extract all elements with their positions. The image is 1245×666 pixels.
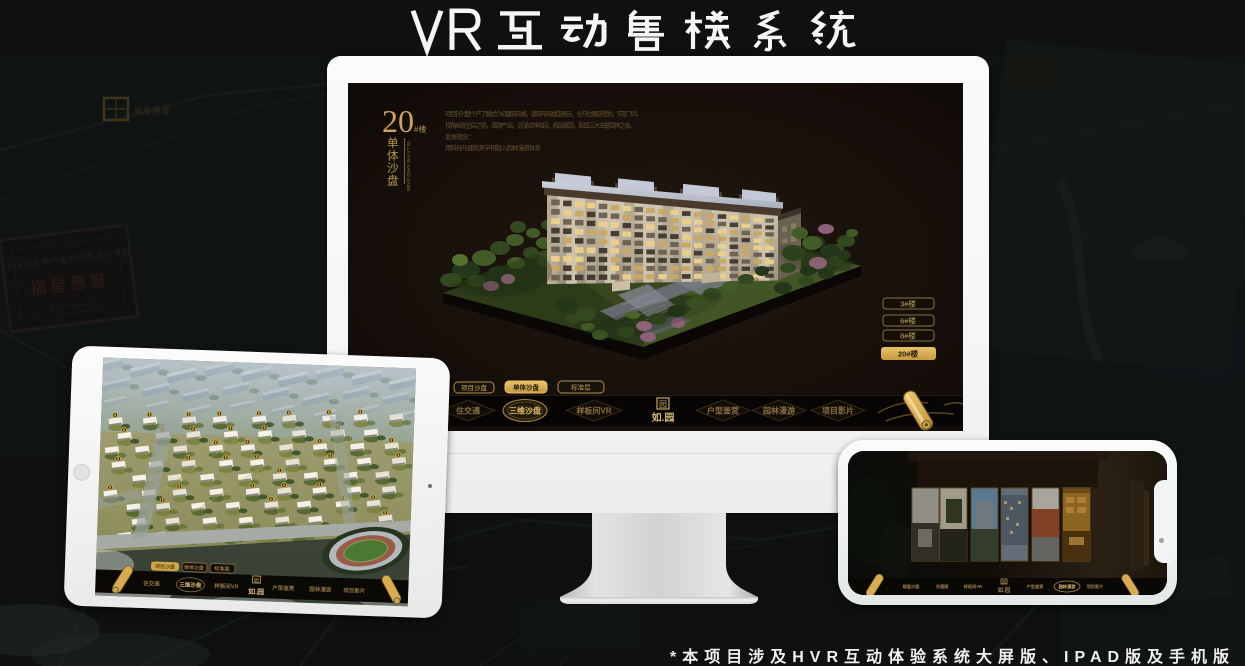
svg-text:三维沙盘: 三维沙盘 — [509, 406, 541, 416]
svg-text:用科技与建筑美学相融入园林漫游体系: 用科技与建筑美学相融入园林漫游体系 — [445, 143, 541, 152]
svg-text:20: 20 — [382, 103, 414, 139]
svg-text:8#楼: 8#楼 — [900, 331, 916, 341]
svg-text:VILLA THE SAND GAME: VILLA THE SAND GAME — [406, 141, 411, 191]
svg-text:项目针对整个产了解式介绍建筑风格，建筑布局楼座展示，全方位展: 项目针对整个产了解式介绍建筑风格，建筑布局楼座展示，全方位展现规划，实现飞鸟 — [445, 109, 638, 118]
svg-text:楼盘沙盘: 楼盘沙盘 — [903, 583, 921, 590]
svg-text:交通图: 交通图 — [936, 583, 949, 590]
svg-text:项目沙盘: 项目沙盘 — [461, 383, 488, 392]
svg-text:20#楼: 20#楼 — [898, 349, 919, 359]
svg-text:体: 体 — [387, 149, 399, 163]
svg-text:3#楼: 3#楼 — [900, 299, 916, 309]
svg-text:如.园: 如.园 — [652, 411, 675, 424]
svg-text:项目影片: 项目影片 — [1087, 583, 1104, 590]
svg-text:盘: 盘 — [387, 174, 399, 188]
svg-text:样板间VR: 样板间VR — [576, 406, 611, 416]
svg-text:园: 园 — [254, 578, 259, 584]
svg-text:单: 单 — [387, 137, 399, 150]
svg-text:视角纵观全局之势，高端产品；沉浸式体验段，精品展现，彰显三大: 视角纵观全局之势，高端产品；沉浸式体验段，精品展现，彰显三大主题园林之美． — [445, 121, 636, 130]
svg-text:户型鉴赏: 户型鉴赏 — [1027, 583, 1045, 590]
svg-text:园林漫游: 园林漫游 — [1059, 583, 1077, 590]
svg-text:单体沙盘: 单体沙盘 — [513, 383, 540, 392]
svg-text:沙: 沙 — [387, 162, 399, 175]
svg-text:住交通: 住交通 — [456, 406, 480, 416]
svg-text:项目影片: 项目影片 — [822, 406, 854, 416]
svg-text:发展理念：: 发展理念： — [445, 132, 475, 141]
svg-text:标准层: 标准层 — [214, 565, 229, 573]
svg-text:#楼: #楼 — [414, 124, 426, 134]
svg-text:园: 园 — [659, 400, 667, 409]
svg-text:项目沙盘: 项目沙盘 — [155, 563, 175, 571]
svg-text:园林漫游: 园林漫游 — [763, 406, 795, 416]
svg-text:园: 园 — [1002, 579, 1006, 585]
svg-text:标准层: 标准层 — [571, 383, 591, 392]
svg-text:单体沙盘: 单体沙盘 — [184, 564, 204, 572]
svg-text:样板间VR: 样板间VR — [964, 583, 982, 590]
svg-text:如.园: 如.园 — [998, 586, 1011, 594]
svg-text:户型鉴赏: 户型鉴赏 — [707, 406, 739, 416]
svg-text:福星惠誉: 福星惠誉 — [134, 105, 170, 116]
svg-text:6#楼: 6#楼 — [900, 316, 916, 326]
